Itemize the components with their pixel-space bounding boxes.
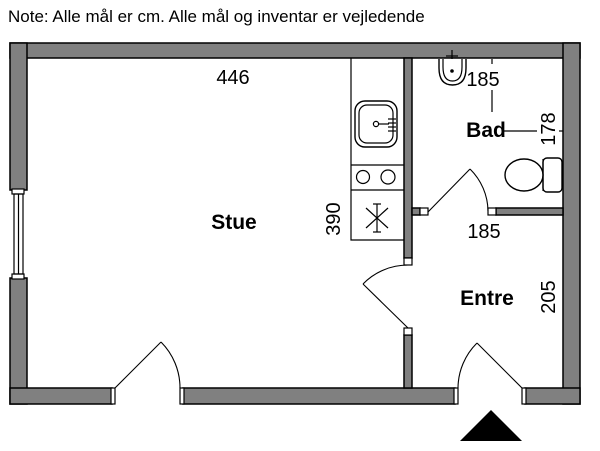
wall-middle-lower xyxy=(404,335,412,388)
dimension-label-bad-depth: 178 xyxy=(538,112,560,145)
room-label-stue: Stue xyxy=(211,211,257,234)
toilet-icon xyxy=(505,158,562,192)
door-jamb xyxy=(111,388,115,404)
floor-plan-page: Note: Alle mål er cm. Alle mål og invent… xyxy=(0,0,600,451)
wall-cap xyxy=(404,258,412,265)
drain-asterisk-icon xyxy=(366,204,388,232)
wall-left-lower xyxy=(10,278,27,404)
wall-bottom-right xyxy=(525,388,580,404)
kitchen-counter xyxy=(351,58,404,240)
wall-top xyxy=(10,43,580,58)
wall-middle-upper xyxy=(404,58,412,258)
dimension-label-entre-width: 185 xyxy=(467,221,500,243)
window-cap xyxy=(12,189,24,194)
door-swing-icon xyxy=(428,169,488,212)
dimension-label-kitchen-run: 390 xyxy=(323,202,345,235)
wall-bottom-left xyxy=(10,388,112,404)
floor-plan-svg: 446 Stue 390 Bad 185 178 185 Entre 205 xyxy=(0,0,600,451)
window-icon xyxy=(12,189,24,279)
door-swing-icon xyxy=(115,342,180,388)
entrance-arrow-icon xyxy=(460,410,522,441)
dimension-label-entre-depth: 205 xyxy=(538,280,560,313)
window-cap xyxy=(12,274,24,279)
stove-burners-icon xyxy=(357,170,396,184)
wall-bad-right xyxy=(496,208,563,215)
door-jamb xyxy=(454,388,458,404)
wall-left-upper xyxy=(10,43,27,190)
wall-bad-stub xyxy=(412,208,420,215)
door-swing-icon xyxy=(363,265,408,328)
wall-cap xyxy=(404,328,412,335)
door-swings xyxy=(115,169,522,388)
room-label-bad: Bad xyxy=(466,119,506,142)
kitchen-sink-icon xyxy=(355,101,397,147)
dimension-label-bad-width: 185 xyxy=(466,69,499,91)
wall-right xyxy=(563,43,580,404)
wall-cap xyxy=(420,208,428,215)
door-jamb xyxy=(180,388,184,404)
room-label-entre: Entre xyxy=(460,287,514,310)
wall-bottom-middle xyxy=(183,388,455,404)
door-swing-icon xyxy=(458,343,522,388)
dimension-label-stue-width: 446 xyxy=(216,67,249,89)
door-jamb xyxy=(522,388,526,404)
wall-cap xyxy=(488,208,496,215)
